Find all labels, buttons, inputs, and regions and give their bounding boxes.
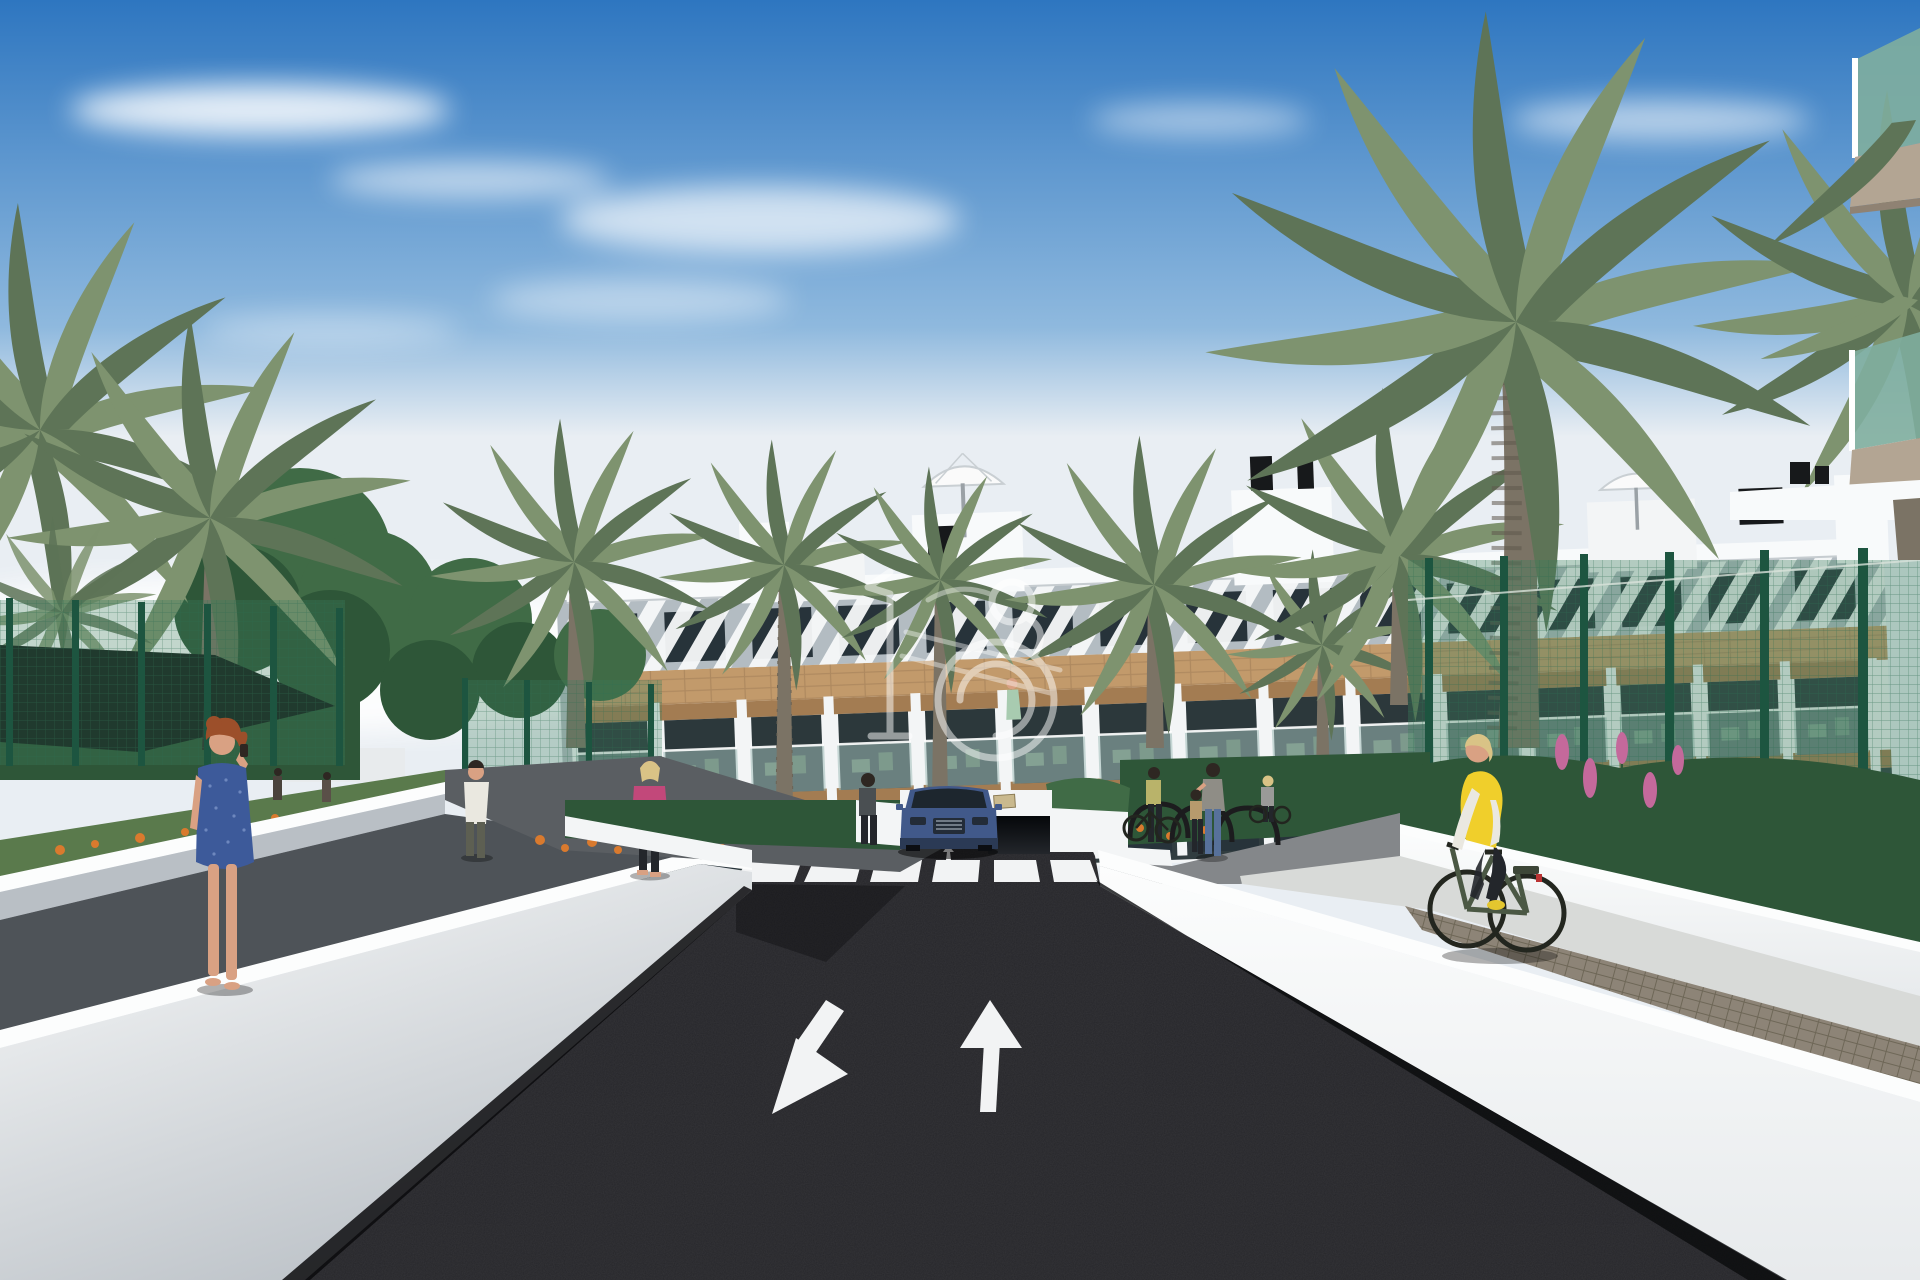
suv-car xyxy=(896,786,1002,859)
render-scene xyxy=(0,0,1920,1280)
planter-wall-garage-right xyxy=(1050,806,1128,852)
glass-balustrade-lower xyxy=(1852,332,1920,450)
cyclist-shoe xyxy=(1487,900,1505,910)
phone xyxy=(240,744,248,757)
architectural-render xyxy=(0,0,1920,1280)
rooftop-vent xyxy=(1790,462,1810,484)
bike-reflector xyxy=(1536,874,1542,882)
bike-rack-rear xyxy=(1513,866,1539,874)
rooftop-vent xyxy=(1815,466,1829,484)
